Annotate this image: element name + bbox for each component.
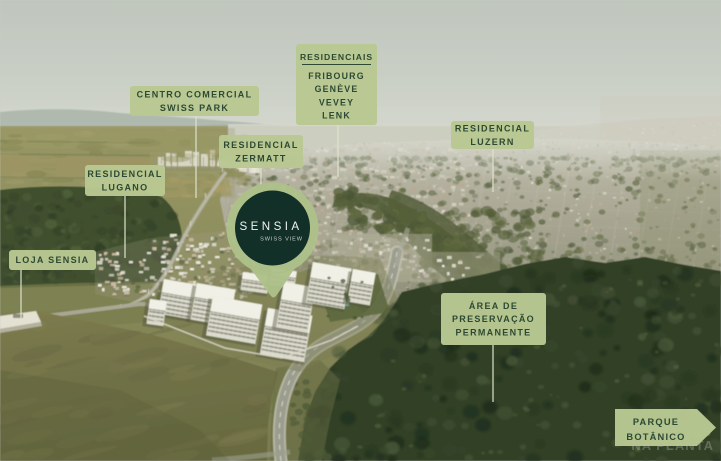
svg-text:LUZERN: LUZERN	[470, 137, 514, 147]
svg-text:PARQUE: PARQUE	[633, 417, 679, 427]
svg-text:VEVEY: VEVEY	[319, 97, 354, 107]
svg-text:SENSIA: SENSIA	[240, 220, 303, 233]
svg-text:LUGANO: LUGANO	[102, 182, 149, 192]
svg-text:BOTÂNICO: BOTÂNICO	[626, 431, 685, 442]
svg-text:FRIBOURG: FRIBOURG	[308, 71, 365, 81]
svg-text:PRESERVAÇÃO: PRESERVAÇÃO	[452, 314, 535, 324]
svg-text:SWISS PARK: SWISS PARK	[160, 103, 229, 113]
svg-text:RESIDENCIAL: RESIDENCIAL	[87, 169, 162, 179]
svg-text:RESIDENCIAIS: RESIDENCIAIS	[300, 52, 373, 62]
svg-text:RESIDENCIAL: RESIDENCIAL	[455, 124, 530, 134]
svg-text:GENÈVE: GENÈVE	[315, 84, 359, 94]
svg-text:ÁREA DE: ÁREA DE	[469, 301, 518, 311]
svg-text:ZERMATT: ZERMATT	[235, 153, 286, 163]
svg-text:PERMANENTE: PERMANENTE	[455, 328, 531, 338]
svg-text:LOJA SENSIA: LOJA SENSIA	[16, 255, 90, 265]
svg-text:LENK: LENK	[322, 111, 351, 121]
svg-text:RESIDENCIAL: RESIDENCIAL	[223, 140, 298, 150]
svg-text:SWISS VIEW: SWISS VIEW	[260, 237, 303, 243]
svg-text:CENTRO COMERCIAL: CENTRO COMERCIAL	[137, 90, 253, 100]
